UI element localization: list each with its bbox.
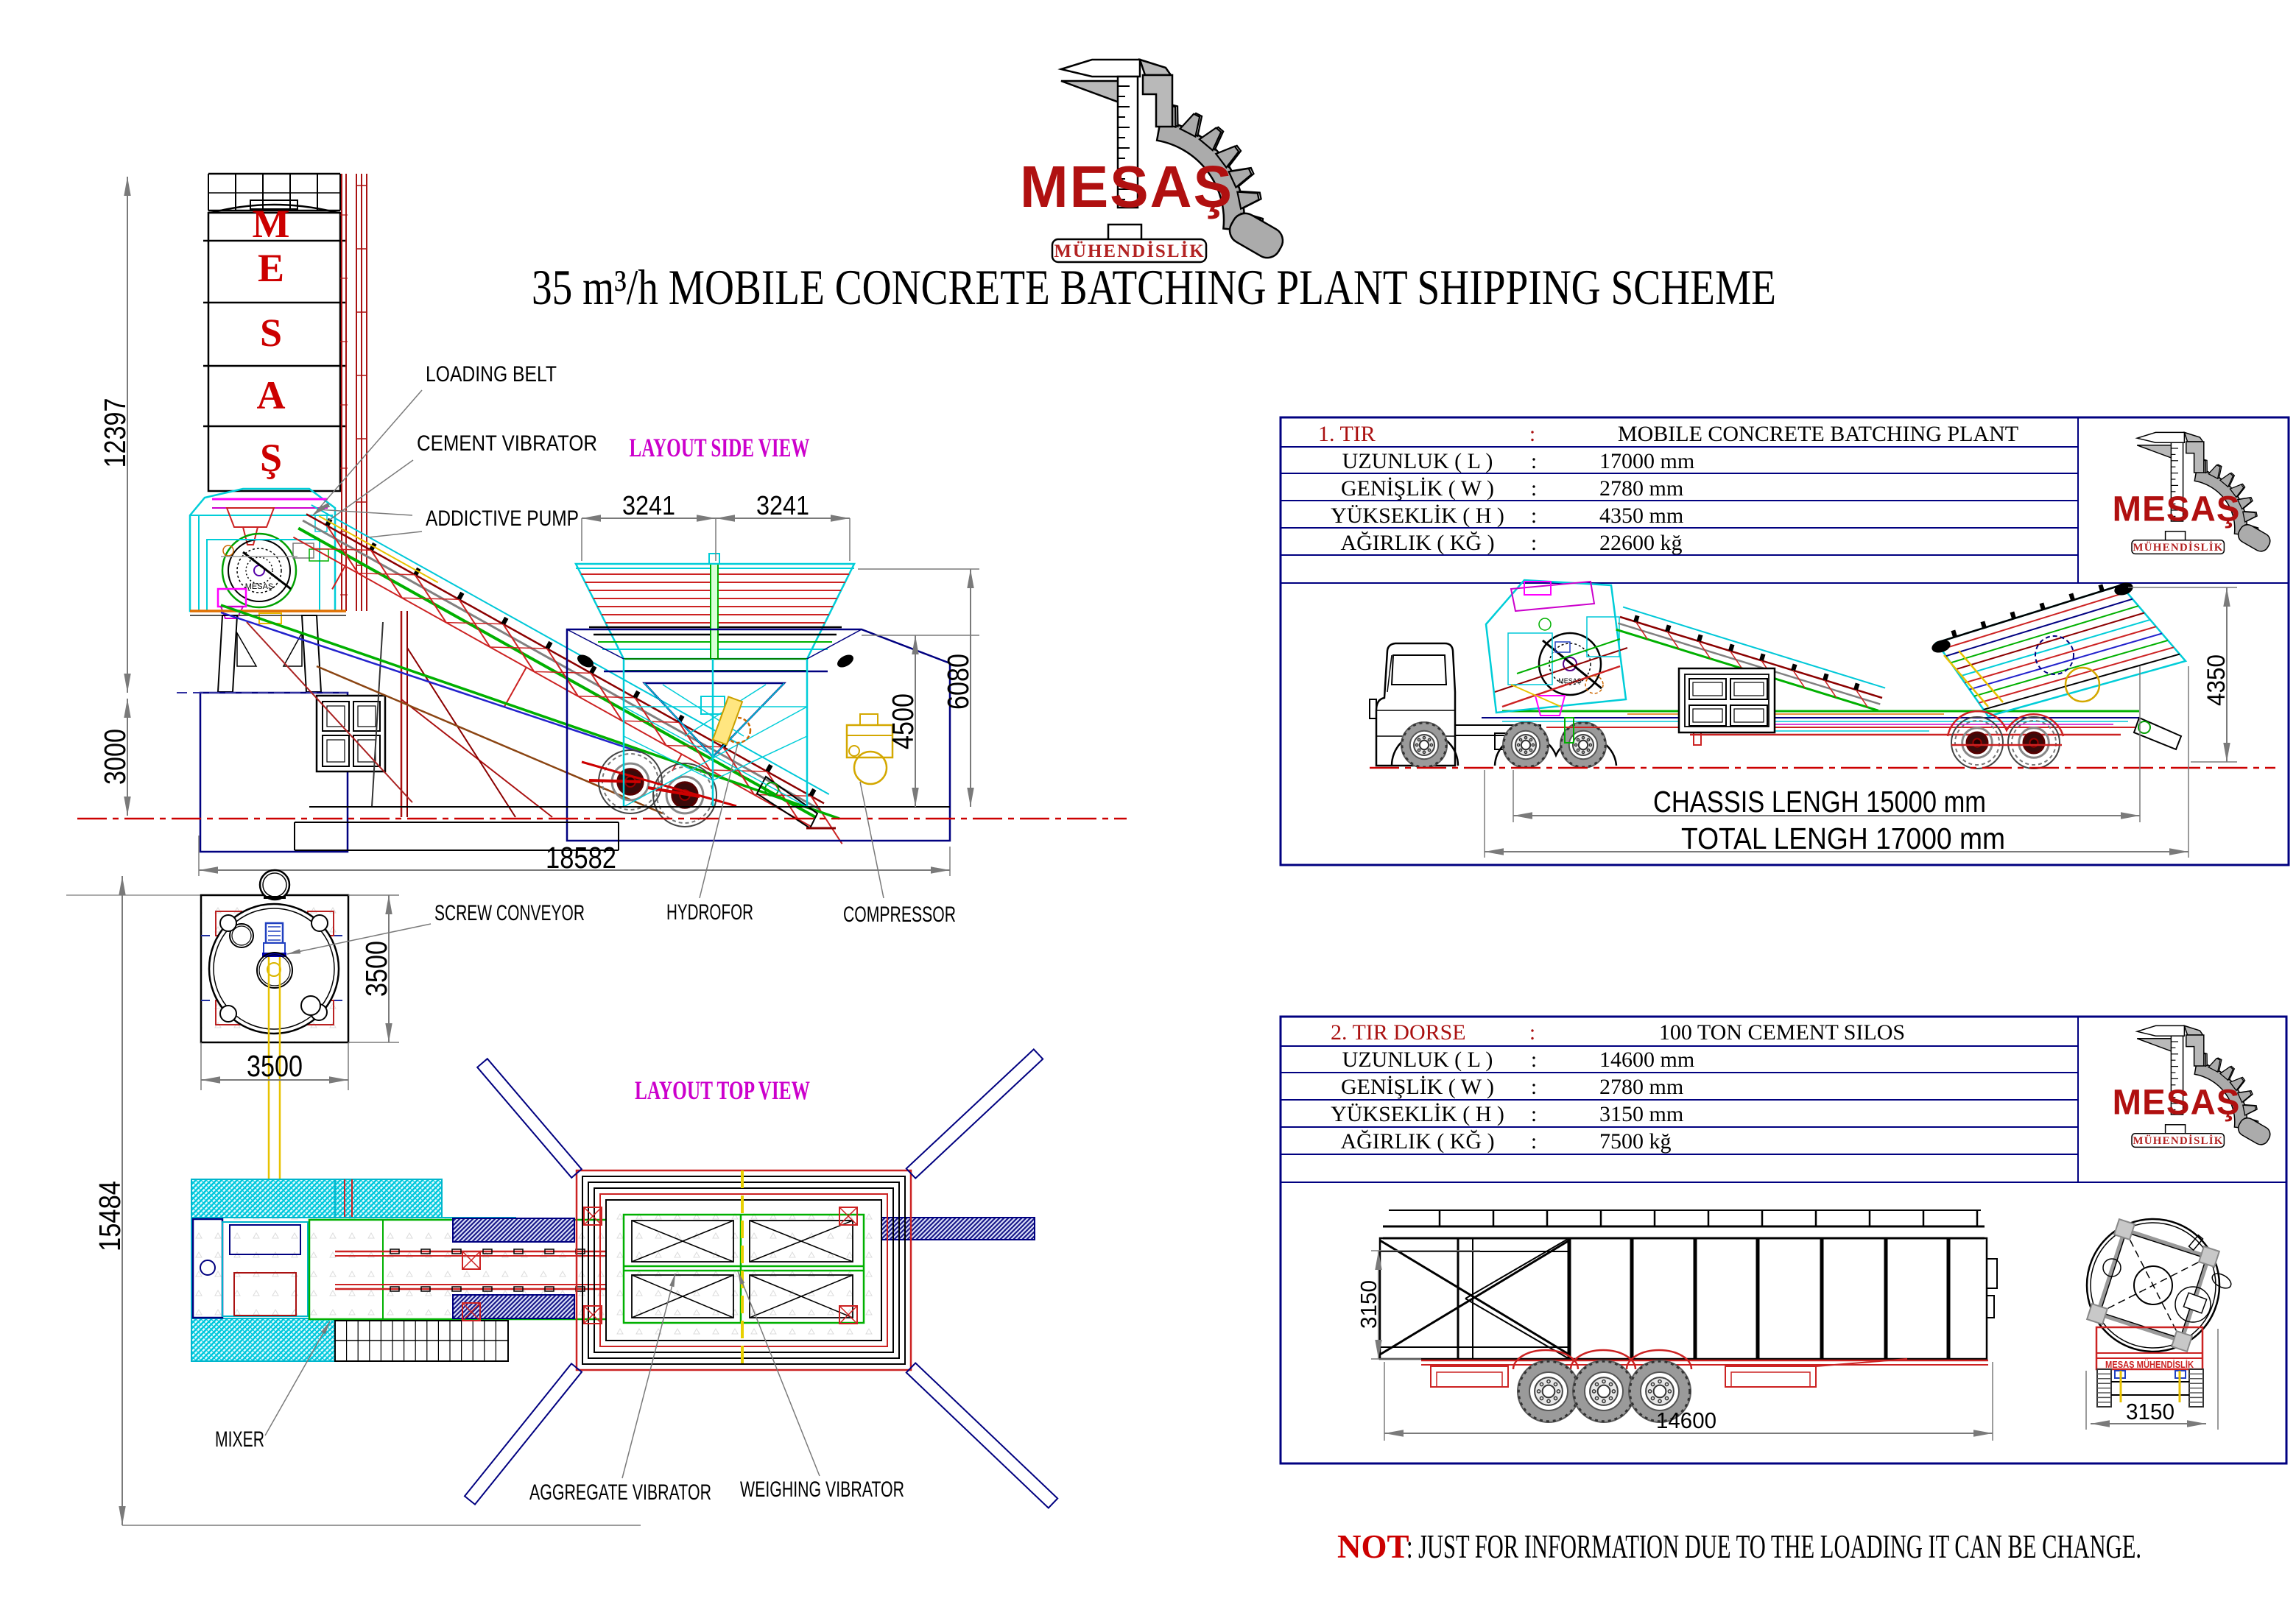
svg-text:MÜHENDİSLİK: MÜHENDİSLİK — [2133, 1134, 2223, 1147]
svg-text:AĞIRLIK ( KĞ ): AĞIRLIK ( KĞ ) — [1340, 531, 1494, 555]
svg-text::: : — [1531, 531, 1537, 555]
svg-text:35 m³/h MOBILE CONCRETE BATCHI: 35 m³/h MOBILE CONCRETE BATCHING PLANT S… — [532, 259, 1776, 315]
svg-text:100 TON CEMENT SILOS: 100 TON CEMENT SILOS — [1659, 1020, 1905, 1045]
svg-text::: : — [1531, 504, 1537, 528]
svg-text::: : — [1531, 1102, 1537, 1126]
svg-text:CEMENT VIBRATOR: CEMENT VIBRATOR — [417, 431, 597, 456]
svg-text:2780 mm: 2780 mm — [1599, 476, 1683, 501]
svg-text:3150 mm: 3150 mm — [1599, 1102, 1683, 1126]
svg-text:MESAŞ: MESAŞ — [1558, 677, 1582, 685]
svg-text:3150: 3150 — [2126, 1399, 2174, 1424]
svg-text:1. TIR: 1. TIR — [1318, 422, 1376, 446]
svg-text:CHASSIS LENGH 15000 mm: CHASSIS LENGH 15000 mm — [1653, 785, 1986, 819]
svg-text:22600 kğ: 22600 kğ — [1599, 531, 1683, 555]
svg-text::: : — [1531, 449, 1537, 473]
svg-text:3500: 3500 — [359, 941, 393, 997]
svg-text::: : — [1531, 1075, 1537, 1099]
svg-text:HYDROFOR: HYDROFOR — [666, 900, 753, 925]
svg-text:MESAŞ: MESAŞ — [2113, 490, 2241, 529]
svg-text:MESAŞ: MESAŞ — [1020, 154, 1233, 219]
svg-text:3241: 3241 — [756, 490, 809, 520]
svg-text:LAYOUT TOP VIEW: LAYOUT TOP VIEW — [635, 1076, 810, 1105]
svg-text:S: S — [260, 311, 282, 355]
svg-text:GENİŞLİK ( W ): GENİŞLİK ( W ) — [1341, 1075, 1494, 1099]
svg-text:3150: 3150 — [1356, 1280, 1381, 1329]
svg-text::: : — [1531, 1048, 1537, 1072]
svg-text::: : — [1531, 1129, 1537, 1154]
svg-text:3241: 3241 — [622, 490, 675, 520]
svg-text:YÜKSEKLİK ( H ): YÜKSEKLİK ( H ) — [1331, 504, 1504, 528]
svg-text:3000: 3000 — [98, 729, 132, 785]
svg-text:14600: 14600 — [1656, 1408, 1716, 1433]
svg-text:E: E — [258, 246, 284, 290]
svg-text:4350 mm: 4350 mm — [1599, 504, 1683, 528]
svg-text:6080: 6080 — [941, 654, 975, 710]
svg-text:COMPRESSOR: COMPRESSOR — [843, 903, 956, 927]
svg-text:12397: 12397 — [98, 398, 132, 468]
svg-text:AGGREGATE VIBRATOR: AGGREGATE VIBRATOR — [529, 1480, 711, 1505]
svg-text:GENİŞLİK ( W ): GENİŞLİK ( W ) — [1341, 476, 1494, 501]
svg-text:2780 mm: 2780 mm — [1599, 1075, 1683, 1099]
svg-text:WEIGHING VIBRATOR: WEIGHING VIBRATOR — [740, 1477, 904, 1502]
svg-text::: : — [1529, 1020, 1535, 1045]
svg-text:A: A — [257, 373, 286, 417]
svg-text:MESAŞ: MESAŞ — [2113, 1083, 2241, 1122]
svg-text:14600 mm: 14600 mm — [1599, 1048, 1694, 1072]
svg-text:4350: 4350 — [2202, 654, 2230, 706]
svg-text:: JUST FOR INFORMATION DUE TO: : JUST FOR INFORMATION DUE TO THE LOADIN… — [1406, 1528, 2141, 1565]
svg-text:MÜHENDİSLİK: MÜHENDİSLİK — [2133, 541, 2223, 554]
svg-text:MESAŞ MÜHENDİSLİK: MESAŞ MÜHENDİSLİK — [2105, 1359, 2194, 1370]
svg-text:YÜKSEKLİK ( H ): YÜKSEKLİK ( H ) — [1331, 1102, 1504, 1126]
svg-text:SCREW CONVEYOR: SCREW CONVEYOR — [434, 901, 585, 925]
svg-text:MIXER: MIXER — [215, 1427, 264, 1452]
svg-text:MÜHENDİSLİK: MÜHENDİSLİK — [1054, 241, 1205, 261]
svg-text:3500: 3500 — [247, 1049, 303, 1083]
svg-text::: : — [1531, 476, 1537, 501]
svg-text:NOT: NOT — [1337, 1528, 1409, 1565]
svg-text::: : — [1529, 422, 1535, 446]
svg-text:MESAŞ: MESAŞ — [245, 582, 274, 591]
svg-text:18582: 18582 — [546, 841, 616, 875]
svg-text:ADDICTIVE PUMP: ADDICTIVE PUMP — [426, 506, 579, 531]
svg-text:15484: 15484 — [93, 1181, 127, 1251]
svg-text:7500 kğ: 7500 kğ — [1599, 1129, 1672, 1154]
svg-text:2. TIR DORSE: 2. TIR DORSE — [1331, 1020, 1466, 1045]
svg-text:UZUNLUK ( L ): UZUNLUK ( L ) — [1342, 1048, 1493, 1072]
svg-text:4500: 4500 — [886, 693, 920, 749]
svg-text:M: M — [253, 202, 290, 246]
svg-text:LAYOUT SIDE VIEW: LAYOUT SIDE VIEW — [630, 433, 810, 462]
svg-text:AĞIRLIK ( KĞ ): AĞIRLIK ( KĞ ) — [1340, 1129, 1494, 1154]
svg-text:MOBILE CONCRETE BATCHING PLANT: MOBILE CONCRETE BATCHING PLANT — [1618, 422, 2018, 446]
svg-text:UZUNLUK ( L ): UZUNLUK ( L ) — [1342, 449, 1493, 473]
svg-text:17000 mm: 17000 mm — [1599, 449, 1694, 473]
svg-text:TOTAL LENGH 17000 mm: TOTAL LENGH 17000 mm — [1681, 822, 2005, 855]
svg-text:LOADING BELT: LOADING BELT — [426, 362, 557, 386]
svg-text:Ş: Ş — [260, 436, 282, 480]
